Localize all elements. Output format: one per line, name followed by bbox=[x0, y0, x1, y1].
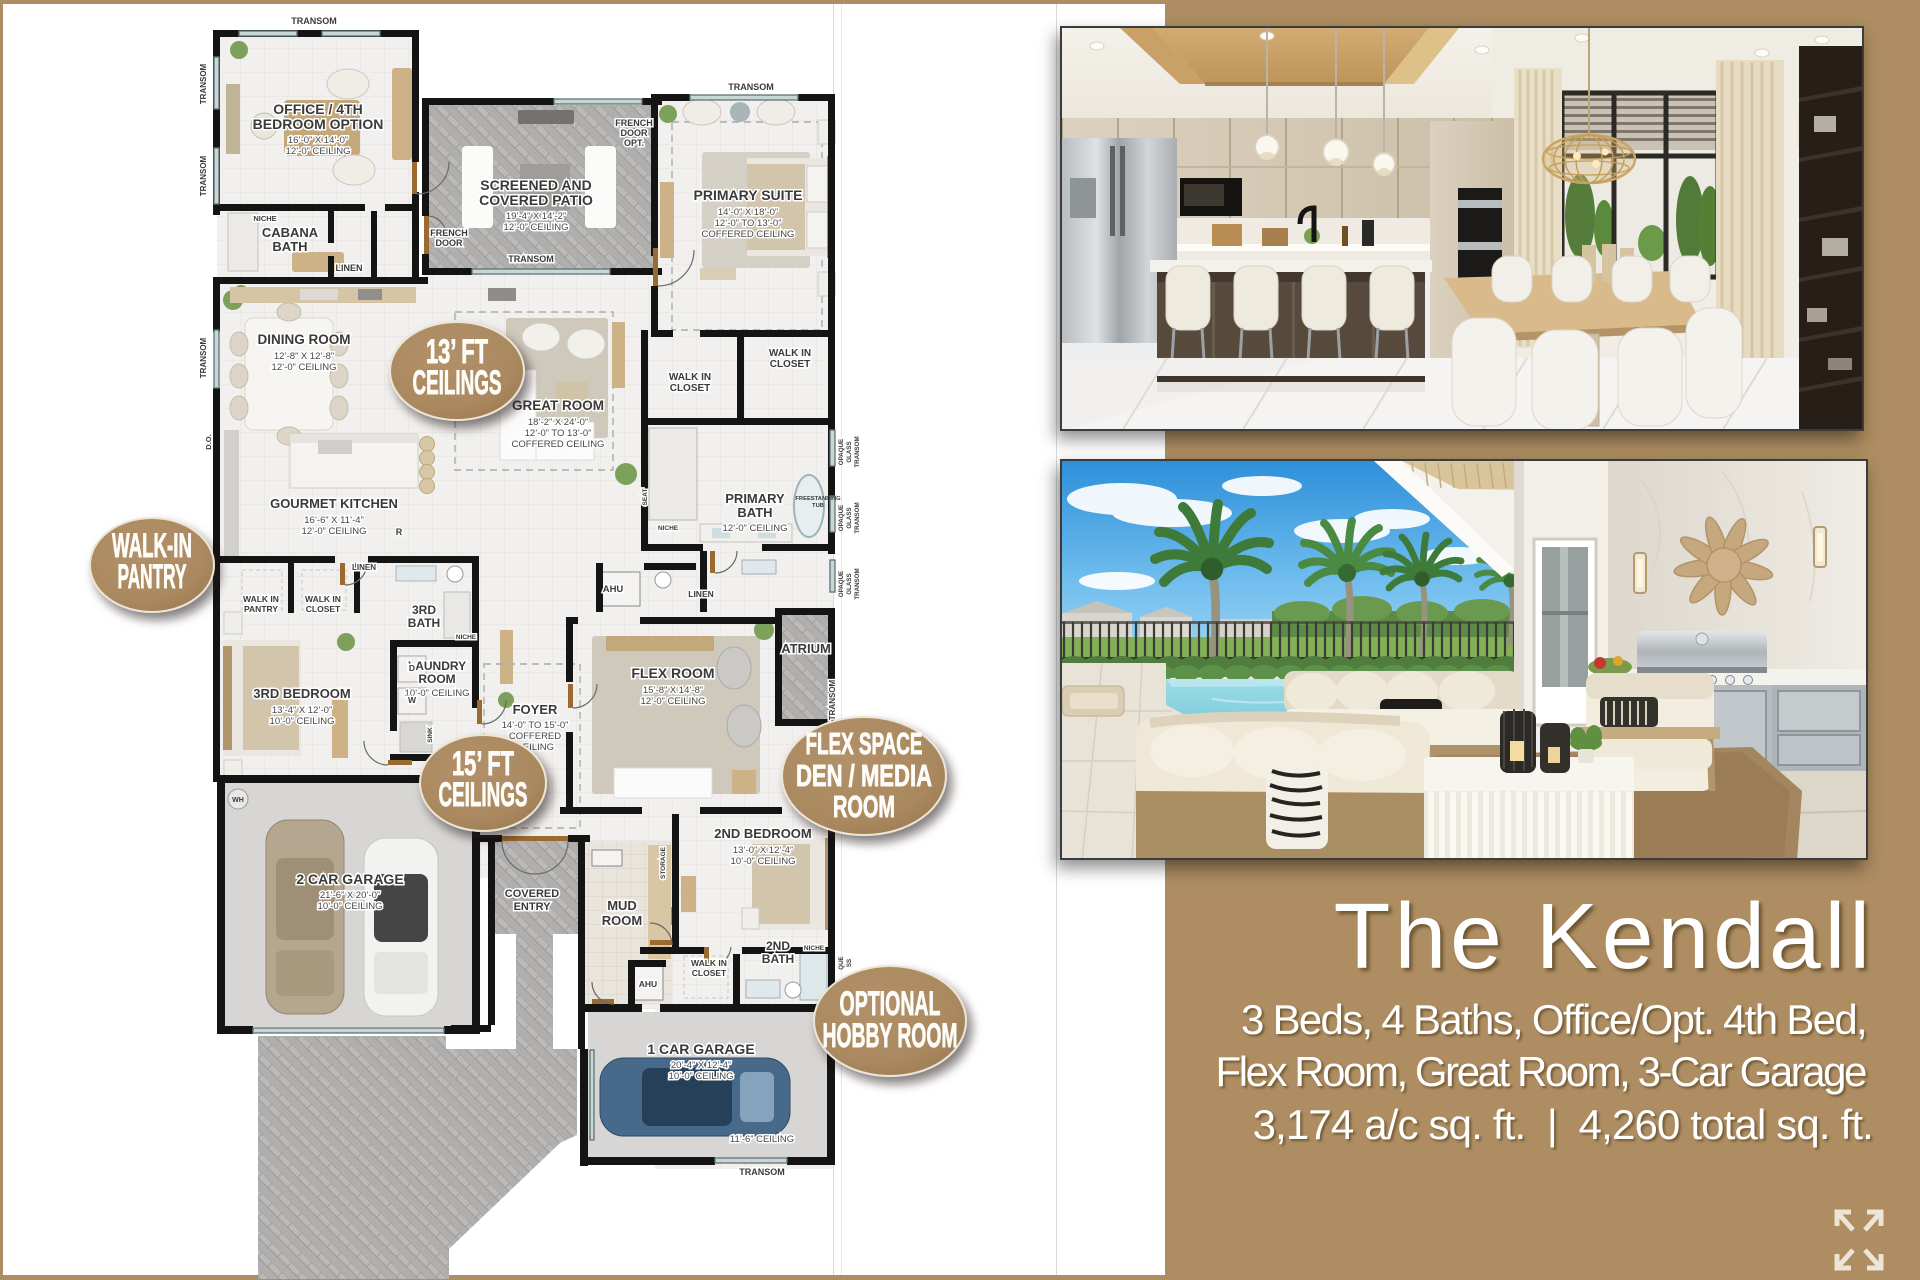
svg-text:GOURMET KITCHEN: GOURMET KITCHEN bbox=[270, 496, 398, 511]
svg-text:W: W bbox=[408, 695, 417, 705]
svg-text:DOOR: DOOR bbox=[621, 128, 649, 138]
svg-text:OPAQUE: OPAQUE bbox=[838, 505, 845, 531]
svg-text:FOYER: FOYER bbox=[513, 702, 558, 717]
svg-text:WALK IN: WALK IN bbox=[669, 372, 711, 383]
svg-text:ENTRY: ENTRY bbox=[514, 901, 552, 913]
svg-text:12’-0” CEILING: 12’-0” CEILING bbox=[272, 362, 337, 373]
svg-text:12’-8” X 12’-8”: 12’-8” X 12’-8” bbox=[274, 351, 334, 362]
svg-text:10’-0” CEILING: 10’-0” CEILING bbox=[270, 716, 335, 727]
svg-text:10’-0” CEILING: 10’-0” CEILING bbox=[318, 901, 383, 912]
svg-text:1 CAR GARAGE: 1 CAR GARAGE bbox=[647, 1041, 754, 1057]
svg-text:OPAQUE: OPAQUE bbox=[838, 439, 845, 465]
svg-text:TRANSOM: TRANSOM bbox=[508, 254, 554, 264]
svg-text:12’-0” CEILING: 12’-0” CEILING bbox=[286, 146, 351, 157]
svg-text:GLASS: GLASS bbox=[846, 507, 853, 528]
svg-text:OPAQUE: OPAQUE bbox=[838, 571, 845, 597]
svg-text:NICHE: NICHE bbox=[804, 945, 825, 952]
svg-text:SEAT: SEAT bbox=[642, 489, 649, 506]
svg-text:12’-0” CEILING: 12’-0” CEILING bbox=[641, 696, 706, 707]
svg-text:WH: WH bbox=[232, 797, 244, 804]
svg-text:12’-0” CEILING: 12’-0” CEILING bbox=[504, 222, 569, 233]
svg-text:12’-0” TO 13’-0”: 12’-0” TO 13’-0” bbox=[715, 218, 782, 229]
svg-text:11’-6” CEILING: 11’-6” CEILING bbox=[730, 1134, 794, 1145]
svg-text:16’-6” X 11’-4”: 16’-6” X 11’-4” bbox=[304, 515, 364, 526]
svg-text:MUD: MUD bbox=[607, 898, 637, 913]
svg-text:12’-0” TO 13’-0”: 12’-0” TO 13’-0” bbox=[525, 428, 592, 439]
svg-text:ATRIUM: ATRIUM bbox=[781, 641, 831, 656]
svg-text:WALK IN: WALK IN bbox=[691, 958, 727, 968]
svg-text:12’-0” CEILING: 12’-0” CEILING bbox=[302, 526, 367, 537]
svg-text:ROOM: ROOM bbox=[833, 789, 895, 824]
svg-text:OPT.: OPT. bbox=[624, 138, 644, 148]
svg-text:LINEN: LINEN bbox=[352, 563, 376, 572]
svg-text:GREAT ROOM: GREAT ROOM bbox=[512, 398, 604, 413]
svg-text:20’-4” X 12’-4”: 20’-4” X 12’-4” bbox=[671, 1060, 731, 1071]
svg-text:SINK: SINK bbox=[427, 727, 434, 743]
svg-text:2 CAR GARAGE: 2 CAR GARAGE bbox=[296, 871, 403, 887]
svg-text:STORAGE: STORAGE bbox=[660, 846, 667, 879]
svg-text:PANTRY: PANTRY bbox=[244, 604, 278, 614]
svg-text:COFFERED CEILING: COFFERED CEILING bbox=[702, 229, 795, 240]
svg-text:AHU: AHU bbox=[603, 584, 624, 595]
svg-text:WALK IN: WALK IN bbox=[243, 594, 279, 604]
svg-text:SS: SS bbox=[846, 959, 853, 967]
svg-text:COVERED PATIO: COVERED PATIO bbox=[479, 192, 593, 208]
svg-text:TUB: TUB bbox=[812, 503, 824, 509]
svg-text:2ND: 2ND bbox=[766, 939, 790, 953]
svg-text:LINEN: LINEN bbox=[688, 589, 714, 599]
svg-text:SCREENED AND: SCREENED AND bbox=[480, 177, 592, 193]
svg-text:CLOSET: CLOSET bbox=[770, 359, 811, 370]
svg-text:FRENCH: FRENCH bbox=[615, 118, 653, 128]
svg-text:TRANSOM: TRANSOM bbox=[291, 16, 337, 26]
svg-text:D: D bbox=[409, 663, 415, 673]
svg-text:TRANSOM: TRANSOM bbox=[854, 568, 861, 599]
svg-text:14’-0” X 18’-0”: 14’-0” X 18’-0” bbox=[718, 207, 778, 218]
svg-text:BATH: BATH bbox=[737, 505, 772, 520]
svg-text:COVERED: COVERED bbox=[505, 888, 559, 900]
svg-text:CLOSET: CLOSET bbox=[306, 604, 341, 614]
svg-text:CABANA: CABANA bbox=[262, 225, 319, 240]
svg-text:10’-0” CEILING: 10’-0” CEILING bbox=[731, 856, 796, 867]
svg-text:CLOSET: CLOSET bbox=[670, 383, 711, 394]
svg-text:13’-0” X 12’-4”: 13’-0” X 12’-4” bbox=[733, 845, 793, 856]
svg-text:NICHE: NICHE bbox=[456, 634, 477, 641]
svg-text:COFFERED: COFFERED bbox=[509, 731, 561, 742]
svg-text:ROOM: ROOM bbox=[418, 672, 455, 686]
svg-text:16’-0” X 14’-0”: 16’-0” X 14’-0” bbox=[288, 135, 348, 146]
svg-text:HOBBY ROOM: HOBBY ROOM bbox=[823, 1017, 958, 1055]
svg-text:NICHE: NICHE bbox=[658, 525, 679, 532]
svg-text:TRANSOM: TRANSOM bbox=[728, 82, 774, 92]
svg-text:ROOM: ROOM bbox=[602, 913, 642, 928]
svg-text:10’-0” CEILING: 10’-0” CEILING bbox=[669, 1071, 734, 1082]
svg-text:OFFICE / 4TH: OFFICE / 4TH bbox=[273, 101, 362, 117]
svg-text:FRENCH: FRENCH bbox=[430, 228, 468, 238]
svg-text:TRANSOM: TRANSOM bbox=[199, 337, 208, 378]
svg-text:CEILINGS: CEILINGS bbox=[439, 776, 528, 814]
svg-text:LAUNDRY: LAUNDRY bbox=[408, 659, 466, 673]
svg-text:21’-6” X 20’-0”: 21’-6” X 20’-0” bbox=[320, 890, 380, 901]
svg-text:14’-0” TO 15’-0”: 14’-0” TO 15’-0” bbox=[502, 720, 569, 731]
svg-text:QUE: QUE bbox=[838, 956, 845, 969]
svg-text:CEILINGS: CEILINGS bbox=[413, 364, 502, 402]
svg-text:PANTRY: PANTRY bbox=[118, 558, 187, 596]
svg-text:3RD BEDROOM: 3RD BEDROOM bbox=[253, 686, 351, 701]
svg-text:TRANSOM: TRANSOM bbox=[199, 155, 208, 196]
svg-text:TRANSOM: TRANSOM bbox=[854, 502, 861, 533]
svg-text:D.O.: D.O. bbox=[204, 434, 213, 449]
svg-text:PRIMARY: PRIMARY bbox=[725, 491, 785, 506]
svg-text:FLEX ROOM: FLEX ROOM bbox=[631, 665, 714, 681]
svg-text:TRANSOM: TRANSOM bbox=[854, 436, 861, 467]
svg-text:13’-4” X 12’-0”: 13’-4” X 12’-0” bbox=[272, 705, 332, 716]
svg-text:GLASS: GLASS bbox=[846, 573, 853, 594]
svg-text:15’-8” X 14’-8”: 15’-8” X 14’-8” bbox=[643, 685, 703, 696]
svg-text:BATH: BATH bbox=[408, 616, 440, 630]
svg-text:18’-2” X 24’-0”: 18’-2” X 24’-0” bbox=[528, 417, 588, 428]
svg-text:TRANSOM: TRANSOM bbox=[199, 63, 208, 104]
svg-text:FREESTANDING: FREESTANDING bbox=[795, 496, 841, 502]
svg-text:GLASS: GLASS bbox=[846, 441, 853, 462]
svg-text:BEDROOM OPTION: BEDROOM OPTION bbox=[253, 116, 384, 132]
svg-text:NICHE: NICHE bbox=[253, 214, 276, 223]
svg-text:3RD: 3RD bbox=[412, 603, 436, 617]
svg-text:DOOR: DOOR bbox=[436, 238, 464, 248]
svg-text:CLOSET: CLOSET bbox=[692, 968, 727, 978]
svg-text:LINEN: LINEN bbox=[336, 263, 363, 273]
svg-text:FLEX SPACE: FLEX SPACE bbox=[806, 726, 923, 761]
svg-text:19’-4” X 14’-2”: 19’-4” X 14’-2” bbox=[506, 211, 566, 222]
svg-text:PRIMARY SUITE: PRIMARY SUITE bbox=[694, 187, 803, 203]
svg-text:COFFERED CEILING: COFFERED CEILING bbox=[512, 439, 605, 450]
svg-text:WALK IN: WALK IN bbox=[305, 594, 341, 604]
svg-text:DINING ROOM: DINING ROOM bbox=[258, 332, 351, 347]
svg-text:2ND BEDROOM: 2ND BEDROOM bbox=[714, 826, 812, 841]
svg-text:DEN / MEDIA: DEN / MEDIA bbox=[796, 758, 932, 793]
svg-text:BATH: BATH bbox=[272, 239, 307, 254]
svg-text:WALK IN: WALK IN bbox=[769, 348, 811, 359]
svg-text:R: R bbox=[396, 527, 403, 537]
svg-text:BATH: BATH bbox=[762, 952, 794, 966]
svg-text:TRANSOM: TRANSOM bbox=[828, 679, 837, 720]
svg-text:TRANSOM: TRANSOM bbox=[739, 1167, 785, 1177]
svg-text:AHU: AHU bbox=[639, 979, 657, 989]
svg-text:12’-0” CEILING: 12’-0” CEILING bbox=[723, 523, 788, 534]
